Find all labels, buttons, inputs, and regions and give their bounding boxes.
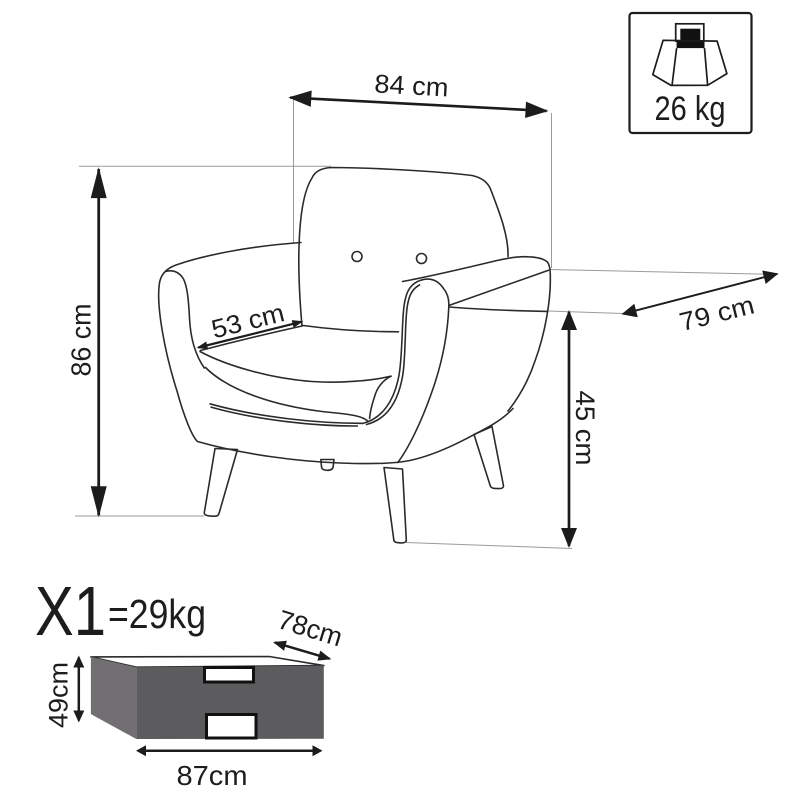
svg-text:49cm: 49cm — [44, 662, 74, 728]
svg-text:87cm: 87cm — [177, 760, 248, 791]
svg-text:=29kg: =29kg — [108, 591, 206, 637]
svg-text:86 cm: 86 cm — [66, 304, 97, 377]
svg-text:45 cm: 45 cm — [570, 391, 600, 466]
svg-text:84 cm: 84 cm — [374, 68, 450, 102]
svg-text:26 kg: 26 kg — [655, 90, 726, 128]
svg-text:X1: X1 — [35, 572, 106, 650]
